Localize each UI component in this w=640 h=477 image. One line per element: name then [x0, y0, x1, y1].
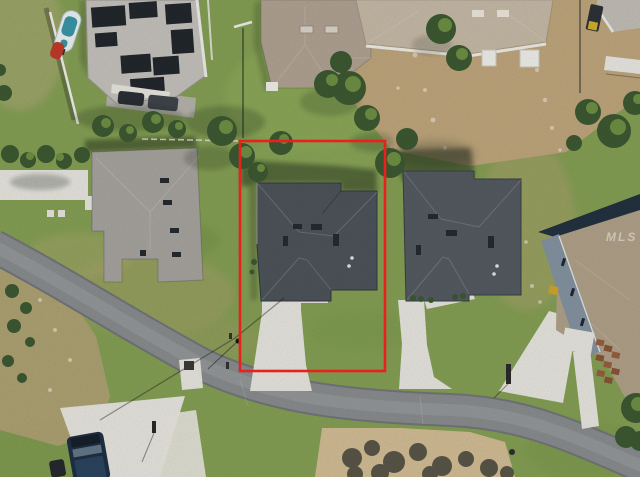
aerial-photo: MLS — [0, 0, 640, 477]
photo-grain — [0, 0, 640, 477]
mls-watermark: MLS — [606, 230, 637, 244]
